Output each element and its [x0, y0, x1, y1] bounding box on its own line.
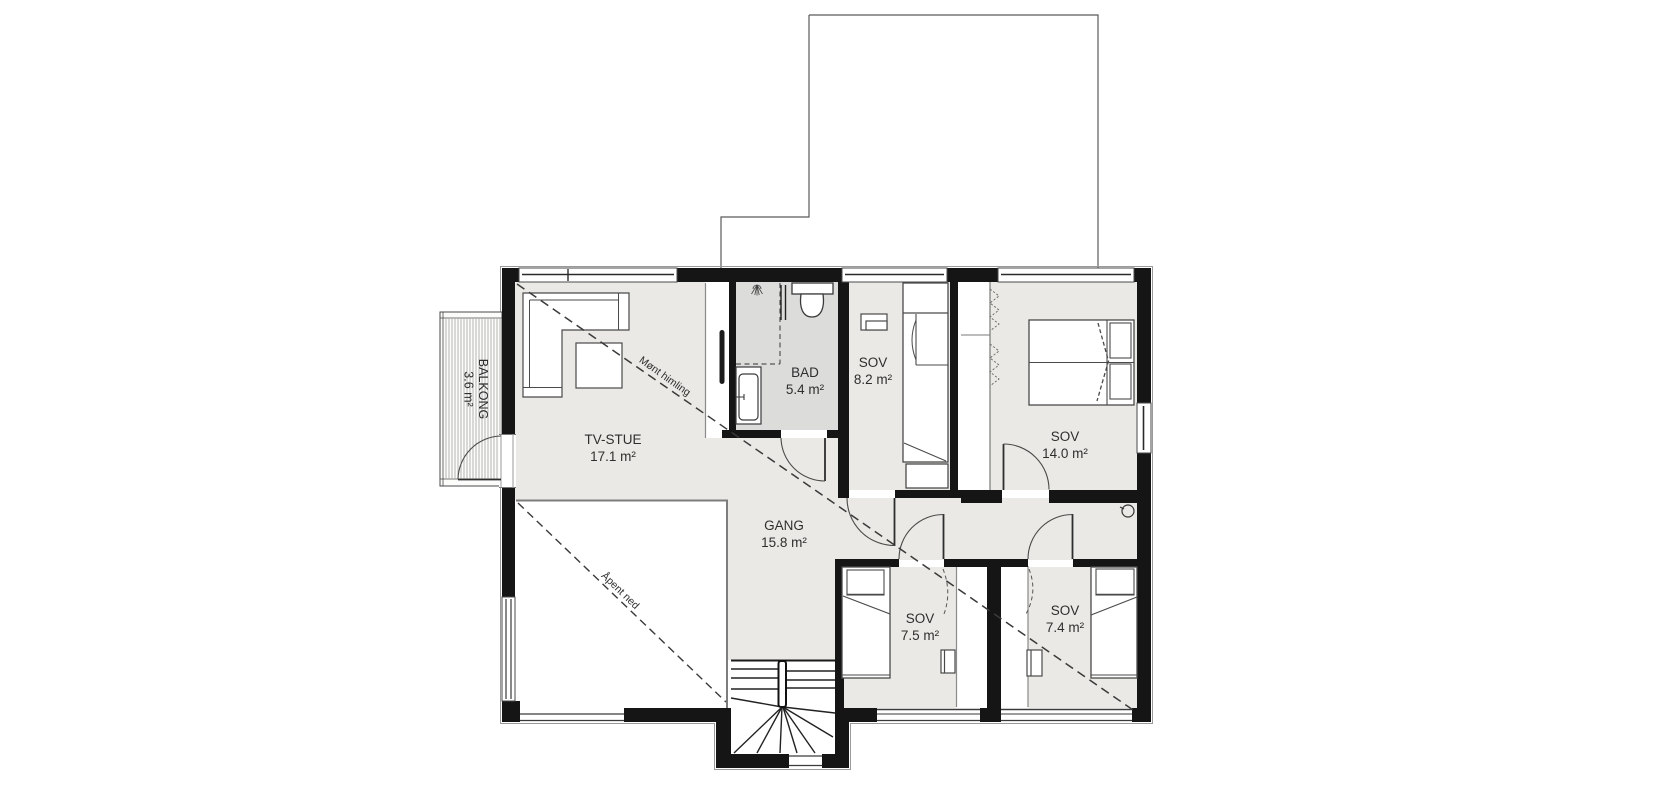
svg-text:SOV: SOV	[906, 611, 935, 626]
svg-text:SOV: SOV	[859, 355, 888, 370]
svg-text:TV-STUE: TV-STUE	[584, 432, 641, 447]
svg-text:8.2 m²: 8.2 m²	[854, 372, 893, 387]
svg-text:3.6 m²: 3.6 m²	[462, 371, 476, 406]
svg-text:BALKONG: BALKONG	[476, 359, 490, 419]
svg-text:5.4 m²: 5.4 m²	[786, 382, 825, 397]
svg-text:BAD: BAD	[791, 365, 819, 380]
svg-text:SOV: SOV	[1051, 429, 1080, 444]
svg-text:17.1 m²: 17.1 m²	[590, 449, 636, 464]
svg-text:7.5 m²: 7.5 m²	[901, 628, 940, 643]
svg-text:GANG: GANG	[764, 518, 804, 533]
svg-text:15.8 m²: 15.8 m²	[761, 535, 807, 550]
svg-text:7.4 m²: 7.4 m²	[1046, 620, 1085, 635]
svg-text:14.0 m²: 14.0 m²	[1042, 446, 1088, 461]
svg-text:SOV: SOV	[1051, 603, 1080, 618]
